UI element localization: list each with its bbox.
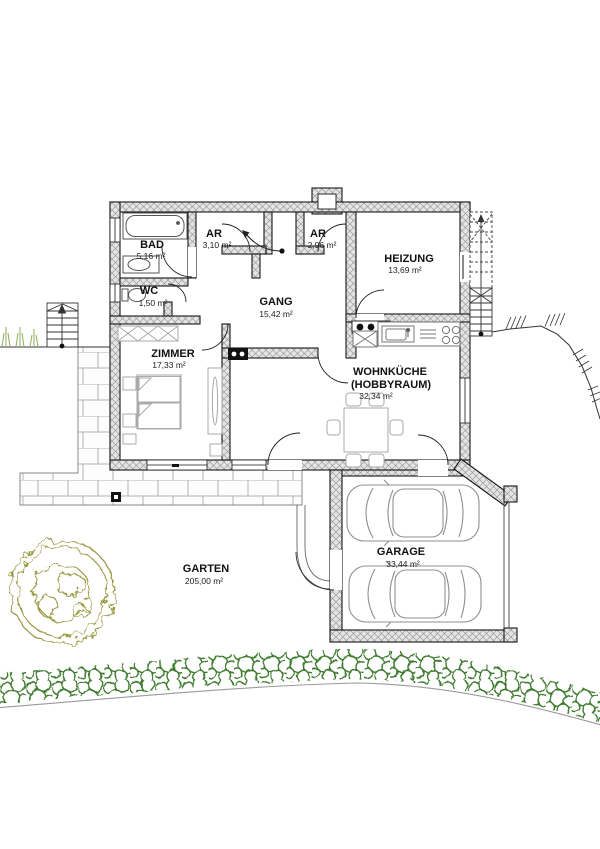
car-suv: [347, 480, 479, 546]
room-area: 32,34 m²: [359, 391, 393, 401]
dining-chair: [369, 454, 384, 467]
room-area: 205,00 m²: [185, 576, 223, 586]
bathtub-drain: [177, 222, 180, 225]
room-label-heizung: HEIZUNG 13,69 m²: [384, 253, 434, 275]
garage-open-side: [504, 502, 509, 628]
door-gap: [418, 460, 448, 470]
wardrobe: [118, 326, 178, 341]
slope-contour: [492, 313, 600, 419]
garage-post-ne: [504, 486, 517, 502]
path-to-garage: [297, 505, 331, 589]
wall-zimmer-north: [110, 316, 200, 324]
room-name: BAD: [140, 239, 164, 251]
room-label-gang: GANG 15,42 m²: [259, 296, 293, 319]
room-name: GARTEN: [183, 563, 230, 575]
room-label-ar1: AR 3,10 m²: [203, 228, 232, 250]
door-gap: [188, 247, 196, 277]
shaft: [353, 331, 377, 347]
garage-threshold: [418, 470, 448, 476]
room-label-wohnkueche: WOHNKÜCHE (HOBBYRAUM) 32,34 m²: [351, 365, 431, 401]
dining-table: [344, 408, 388, 452]
arrow-dot: [279, 248, 284, 253]
car-sedan: [349, 561, 481, 627]
door-gap: [460, 252, 470, 282]
room-name: HEIZUNG: [384, 253, 434, 265]
nightstand: [123, 414, 136, 427]
room-name: GANG: [260, 296, 293, 308]
room-area: 3,10 m²: [203, 240, 232, 250]
bedroom-furniture: [118, 326, 222, 456]
door-gap: [330, 550, 342, 590]
room-name: WOHNKÜCHE: [353, 365, 427, 378]
floor-plan-svg: BAD 5,16 m² WC 1,50 m² AR 3,10 m² AR 2,9…: [0, 0, 600, 849]
hedge-band: [0, 649, 600, 724]
bench: [123, 434, 136, 444]
dining-set: [327, 393, 403, 467]
room-label-wc: WC 1,50 m²: [139, 285, 168, 308]
room-area: 17,33 m²: [152, 360, 186, 370]
double-bed: [137, 375, 181, 429]
room-area: 1,50 m²: [139, 298, 168, 308]
room-name: GARAGE: [377, 546, 425, 558]
hedge: [0, 649, 600, 726]
nightstand: [123, 377, 136, 390]
chimney-flue: [318, 194, 336, 209]
slope-hatch-ticks: [506, 313, 600, 402]
door-gap: [268, 460, 302, 470]
room-label-ar2: AR 2,96 m²: [308, 228, 337, 250]
bathtub-basin: [126, 216, 184, 237]
terrace-post-core: [114, 495, 118, 499]
room-name: WC: [140, 285, 158, 297]
room-label-bad: BAD 5,16 m²: [137, 239, 166, 261]
window-mark: [172, 464, 179, 467]
dining-chair: [346, 454, 361, 467]
garage-post-se: [504, 628, 517, 642]
side-table: [210, 444, 222, 456]
room-name: ZIMMER: [151, 348, 194, 360]
room-area: 13,69 m²: [388, 265, 422, 275]
room-label-garten: GARTEN 205,00 m²: [183, 563, 230, 586]
wall-garage-south: [330, 630, 516, 642]
exterior-stairs-west: [47, 303, 78, 348]
dining-chair: [390, 420, 403, 435]
room-area: 33,44 m²: [386, 559, 420, 569]
sink: [386, 329, 406, 340]
room-subname: (HOBBYRAUM): [351, 379, 431, 391]
room-name: AR: [310, 228, 326, 240]
room-area: 5,16 m²: [137, 251, 166, 261]
room-name: AR: [206, 228, 222, 240]
dining-chair: [327, 420, 340, 435]
room-label-zimmer: ZIMMER 17,33 m²: [151, 348, 194, 370]
wall-zimmer-east: [222, 324, 230, 460]
floor-plan-page: BAD 5,16 m² WC 1,50 m² AR 3,10 m² AR 2,9…: [0, 0, 600, 849]
wall-north: [110, 202, 470, 212]
faucet-base: [406, 328, 410, 332]
sideboard: [208, 368, 222, 434]
duct-box: [228, 348, 248, 360]
room-area: 15,42 m²: [259, 309, 293, 319]
door-swing: [168, 284, 186, 302]
exterior-stairs-east: [470, 212, 492, 336]
toilet-tank: [122, 289, 128, 301]
stairs-dot: [479, 332, 484, 337]
tree: [10, 540, 114, 644]
room-area: 2,96 m²: [308, 240, 337, 250]
door-swing: [318, 353, 348, 383]
grass-tufts: [2, 327, 38, 347]
wall-gang-stub: [252, 254, 260, 278]
